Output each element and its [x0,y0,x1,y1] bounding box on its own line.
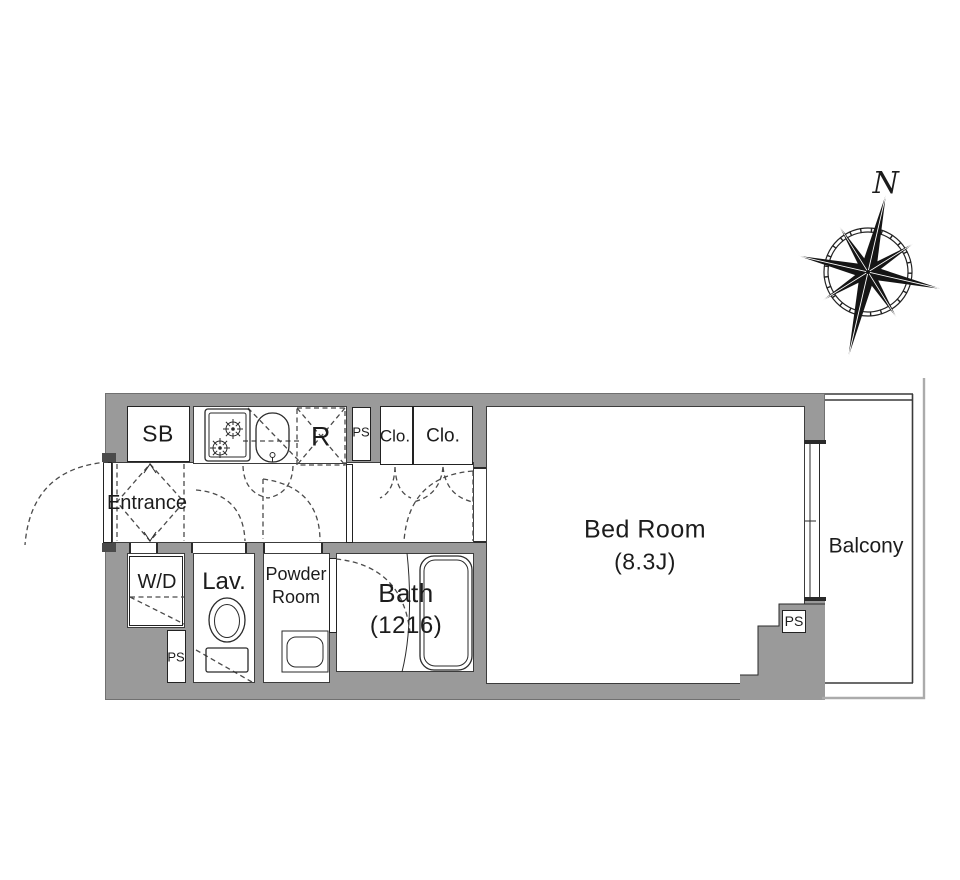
label-powder-2: Room [272,588,320,606]
entrance-door-jamb-top [102,453,116,462]
bedroom-doorway [474,467,486,543]
powder-door-gap [263,543,323,553]
label-bath: Bath [378,580,434,606]
balcony-window [805,443,825,600]
bath-door [329,558,337,633]
floor-plan-page: SB Entrance R PS Clo. Clo. Bed Room (8.3… [0,0,960,880]
label-bedroom: Bed Room [584,518,706,543]
closet-divider [412,407,414,464]
label-lavatory: Lav. [202,570,246,594]
label-bath-size: (1216) [370,614,442,638]
label-balcony: Balcony [829,536,904,557]
label-ps-kitchen: PS [352,426,369,439]
label-bedroom-size: (8.3J) [614,551,676,574]
label-closet-1: Clo. [380,428,410,445]
entrance-door-arc [25,462,108,545]
compass-north-label: N [873,169,900,199]
bedroom-floor [486,406,805,684]
label-closet-2: Clo. [426,427,460,446]
hall-partition [346,464,353,543]
label-ps-washer: PS [167,651,184,664]
label-entrance: Entrance [107,493,187,513]
wd-door-gap [129,543,158,553]
label-powder-1: Powder [265,565,326,583]
compass-rose-icon [778,178,960,375]
entrance-door-jamb-bottom [102,543,116,552]
label-range: R [311,424,331,451]
label-sb: SB [142,423,174,446]
label-ps-bedroom: PS [785,614,804,628]
lavatory-door-gap [191,543,247,553]
label-washer-dryer: W/D [138,572,177,592]
